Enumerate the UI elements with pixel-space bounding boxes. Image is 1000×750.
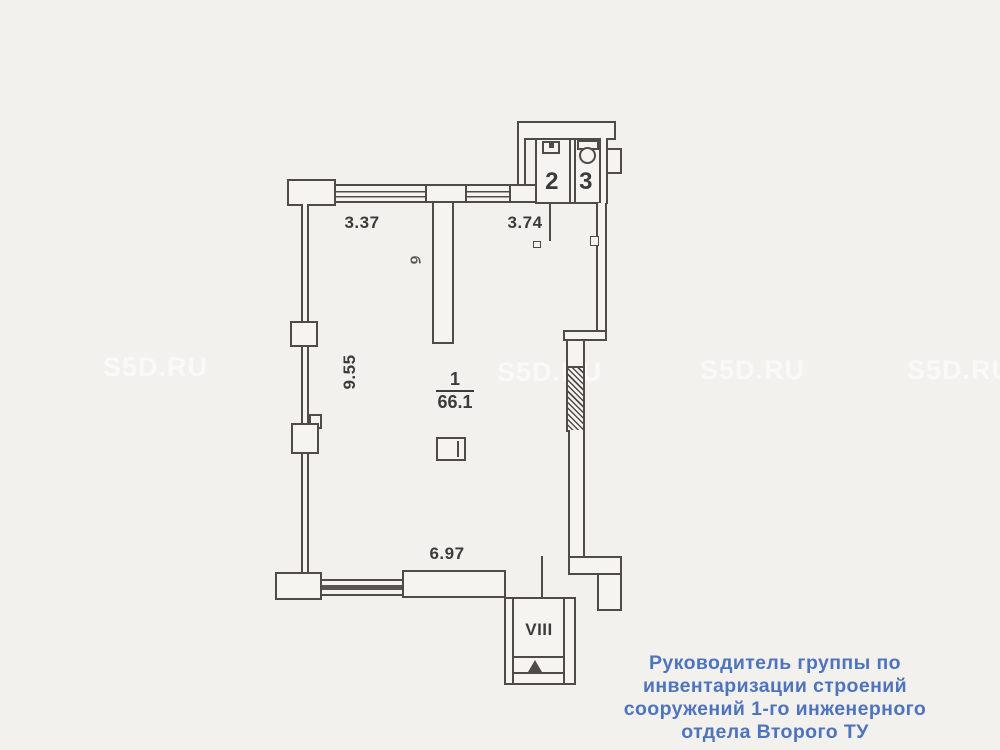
bottom-wall-thick-block — [402, 570, 506, 598]
annex-right-step — [606, 148, 622, 174]
right-wall-upper — [596, 203, 607, 334]
sink-fixture — [579, 147, 596, 164]
room-2-number: 2 — [540, 170, 564, 194]
right-wall-lower — [568, 430, 585, 558]
window-top-left — [334, 184, 427, 203]
room-1-area: 66.1 — [426, 393, 484, 411]
right-wall-tick — [590, 236, 599, 246]
left-wall-pilaster-lower — [291, 423, 319, 454]
room-1-label: 1 66.1 — [426, 370, 484, 411]
room-1-number: 1 — [426, 370, 484, 388]
watermark: S5D.RU — [497, 357, 602, 388]
right-pier-top — [566, 339, 585, 368]
top-left-corner-pier — [287, 179, 336, 206]
window-top-mid — [465, 184, 511, 203]
toilet-fixture-mark — [549, 141, 554, 148]
right-bottom-step-b — [597, 573, 622, 611]
bottom-wall-segment — [320, 579, 404, 596]
caption-line: сооружений 1-го инженерного — [558, 698, 992, 721]
vestibule-step-line-2 — [514, 672, 563, 674]
caption-line: отдела Второго ТУ — [558, 721, 992, 744]
floor-plan-page: S5D.RU S5D.RU S5D.RU S5D.RU 2 3 3.37 3.7… — [0, 0, 1000, 750]
dim-bottom: 6.97 — [415, 544, 479, 564]
left-wall-pilaster-upper — [290, 321, 318, 347]
small-square-symbol — [533, 241, 541, 248]
top-wall-segment — [425, 184, 467, 203]
dim-top-mid: 3.74 — [495, 213, 555, 233]
dim-left: 9.55 — [340, 344, 360, 400]
door-swing-symbol — [528, 660, 542, 672]
watermark: S5D.RU — [103, 352, 208, 383]
caption-block: Руководитель группы по инвентаризации ст… — [558, 652, 992, 744]
interior-partition-wall — [432, 203, 454, 344]
room-3-number: 3 — [574, 170, 598, 194]
watermark: S5D.RU — [700, 355, 805, 386]
right-pier-hatched — [566, 366, 585, 432]
caption-line: Руководитель группы по — [558, 652, 992, 675]
top-wall-segment-right — [509, 184, 537, 203]
watermark: S5D.RU — [907, 355, 1000, 386]
left-wall — [301, 204, 309, 575]
annex-left-wall — [517, 138, 526, 186]
caption-line: инвентаризации строений — [558, 675, 992, 698]
dim-top-left: 3.37 — [330, 213, 394, 233]
equipment-symbol — [436, 437, 466, 461]
room-viii-number: VIII — [512, 620, 566, 640]
bottom-left-corner-pier — [275, 572, 322, 600]
vestibule-inner-left — [512, 599, 514, 683]
equipment-symbol-line — [457, 441, 459, 457]
vent-symbol: б — [407, 256, 423, 265]
vestibule-step-line-1 — [514, 656, 563, 658]
